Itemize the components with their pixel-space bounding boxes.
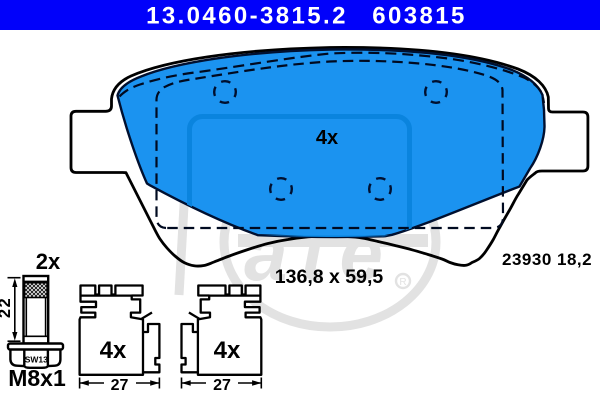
svg-text:4x: 4x	[100, 337, 127, 364]
svg-text:13.0460-3815.2: 13.0460-3815.2	[146, 3, 348, 30]
svg-text:603815: 603815	[372, 3, 467, 30]
svg-text:SW13: SW13	[25, 355, 48, 365]
svg-text:22: 22	[0, 297, 14, 318]
svg-text:27: 27	[111, 377, 129, 394]
svg-text:27: 27	[213, 377, 231, 394]
svg-text:2x: 2x	[36, 249, 61, 274]
svg-text:4x: 4x	[316, 127, 338, 149]
svg-text:4x: 4x	[214, 337, 241, 364]
svg-text:R: R	[399, 277, 406, 288]
svg-text:136,8 x 59,5: 136,8 x 59,5	[275, 266, 384, 288]
svg-text:M8x1: M8x1	[8, 365, 66, 391]
svg-text:23930 18,2: 23930 18,2	[502, 250, 592, 269]
